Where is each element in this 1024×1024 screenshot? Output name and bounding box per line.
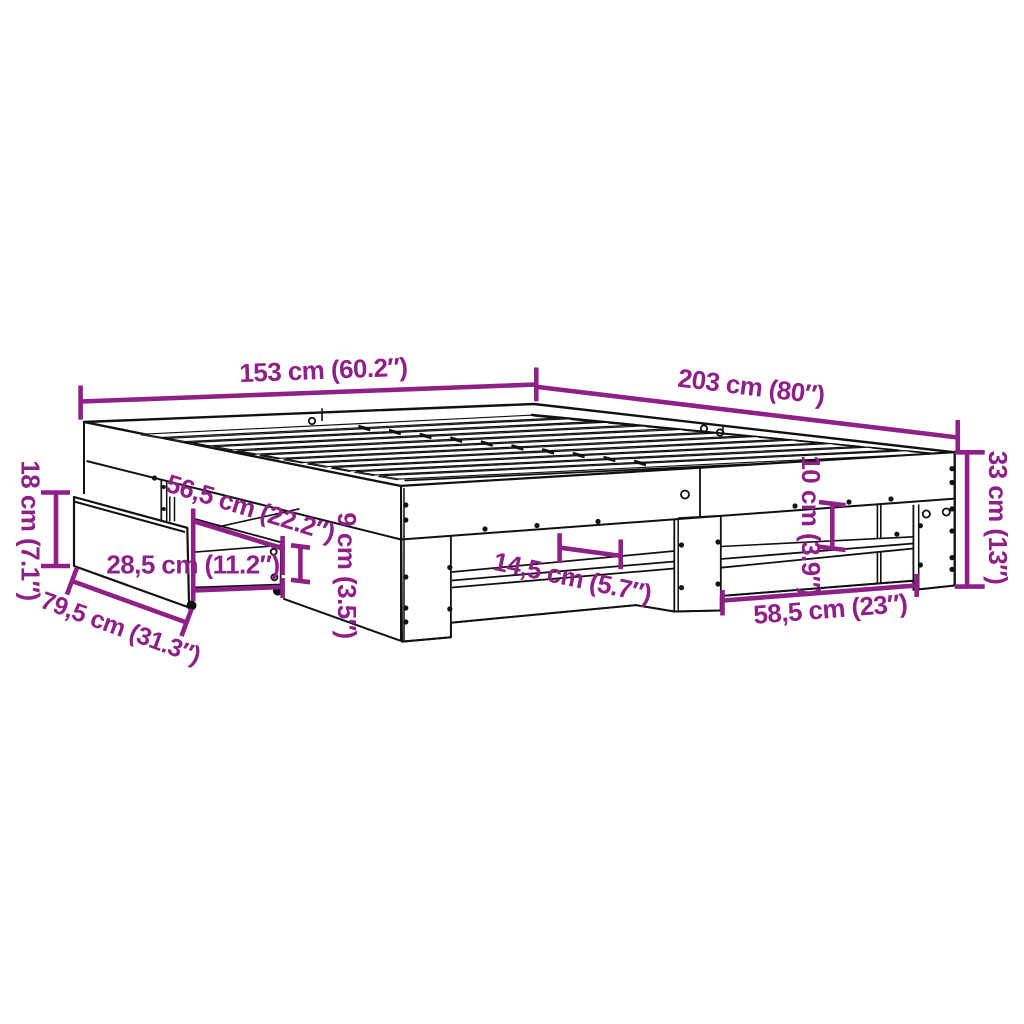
svg-text:9 cm (3.5″): 9 cm (3.5″) xyxy=(332,512,362,638)
svg-text:18 cm (7.1″): 18 cm (7.1″) xyxy=(16,460,46,600)
svg-text:10 cm (3.9″): 10 cm (3.9″) xyxy=(796,455,826,595)
svg-text:33 cm (13″): 33 cm (13″) xyxy=(983,451,1013,585)
svg-text:28,5 cm (11.2″): 28,5 cm (11.2″) xyxy=(106,549,279,579)
